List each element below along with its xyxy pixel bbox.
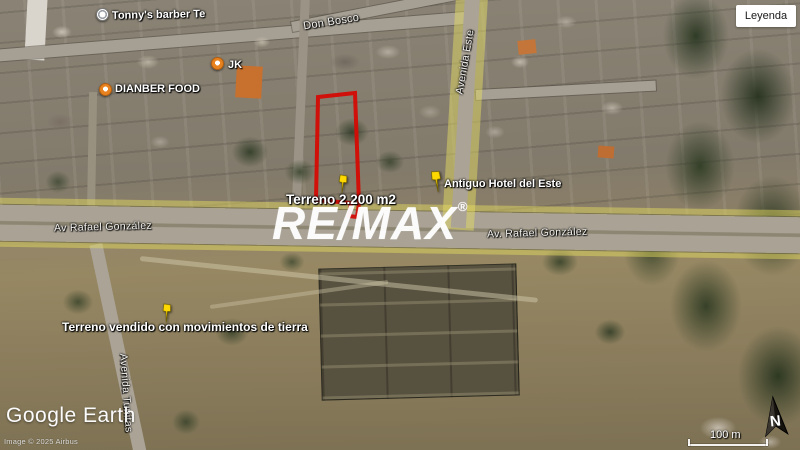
north-compass-icon: N bbox=[756, 393, 795, 442]
remax-watermark: RE/MAX® bbox=[272, 200, 469, 246]
hotel-pushpin[interactable] bbox=[427, 169, 445, 195]
scale-bar-label: 100 m bbox=[710, 429, 741, 441]
dianber-place-label[interactable]: DIANBER FOOD bbox=[115, 83, 200, 95]
jk-place-label[interactable]: JK bbox=[228, 59, 242, 71]
svg-text:N: N bbox=[769, 412, 782, 430]
scale-bar-line bbox=[688, 444, 768, 446]
remax-brand-text: RE/MAX bbox=[272, 197, 457, 249]
map-canvas[interactable]: Tonny's barber Te Don Bosco Avenida Este… bbox=[0, 0, 800, 450]
jk-place-icon[interactable] bbox=[211, 57, 224, 70]
legend-button[interactable]: Leyenda bbox=[736, 5, 796, 27]
tonnys-place-label[interactable]: Tonny's barber Te bbox=[112, 8, 205, 22]
sold-parcel-label: Terreno vendido con movimientos de tierr… bbox=[62, 320, 308, 334]
dianber-place-icon[interactable] bbox=[99, 83, 112, 96]
tonnys-place-icon[interactable] bbox=[96, 8, 109, 21]
hotel-placemark-label[interactable]: Antiguo Hotel del Este bbox=[444, 178, 561, 190]
scale-bar-tick-left bbox=[688, 439, 690, 446]
imagery-copyright: Image © 2025 Airbus bbox=[4, 437, 78, 446]
google-earth-logo: Google Earth bbox=[6, 404, 136, 428]
registered-trademark-symbol: ® bbox=[458, 199, 469, 214]
street-label-av-rafael-left: Av Rafael González bbox=[54, 220, 152, 235]
